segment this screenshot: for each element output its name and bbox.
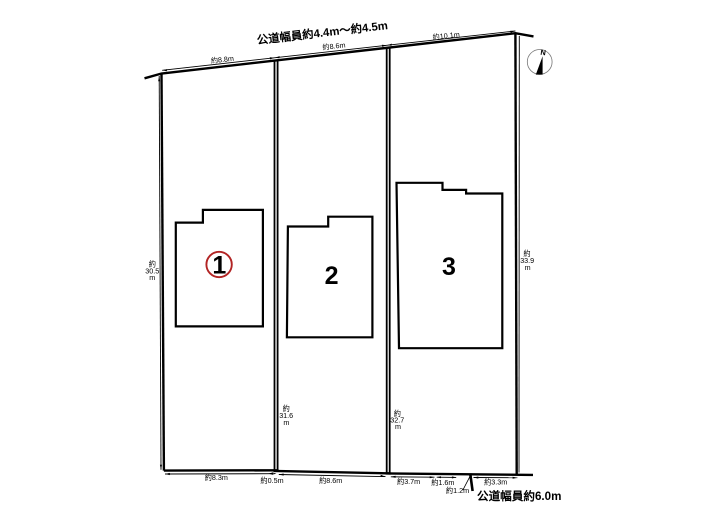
svg-text:1: 1 (212, 252, 226, 280)
svg-text:N: N (540, 48, 547, 58)
svg-text:公道幅員約6.0m: 公道幅員約6.0m (477, 489, 561, 503)
svg-text:3: 3 (442, 253, 456, 281)
svg-text:約3.3m: 約3.3m (484, 477, 507, 486)
svg-text:約8.6m: 約8.6m (319, 476, 342, 485)
svg-text:m: m (283, 418, 289, 427)
svg-text:m: m (525, 263, 531, 272)
svg-text:約0.5m: 約0.5m (260, 476, 283, 485)
svg-text:約8.3m: 約8.3m (205, 473, 228, 482)
svg-text:約1.2m: 約1.2m (446, 486, 469, 495)
svg-text:m: m (395, 422, 401, 431)
svg-text:約3.7m: 約3.7m (397, 477, 420, 486)
svg-text:約8.8m: 約8.8m (210, 54, 234, 66)
svg-text:m: m (149, 273, 155, 282)
svg-text:2: 2 (325, 262, 339, 290)
